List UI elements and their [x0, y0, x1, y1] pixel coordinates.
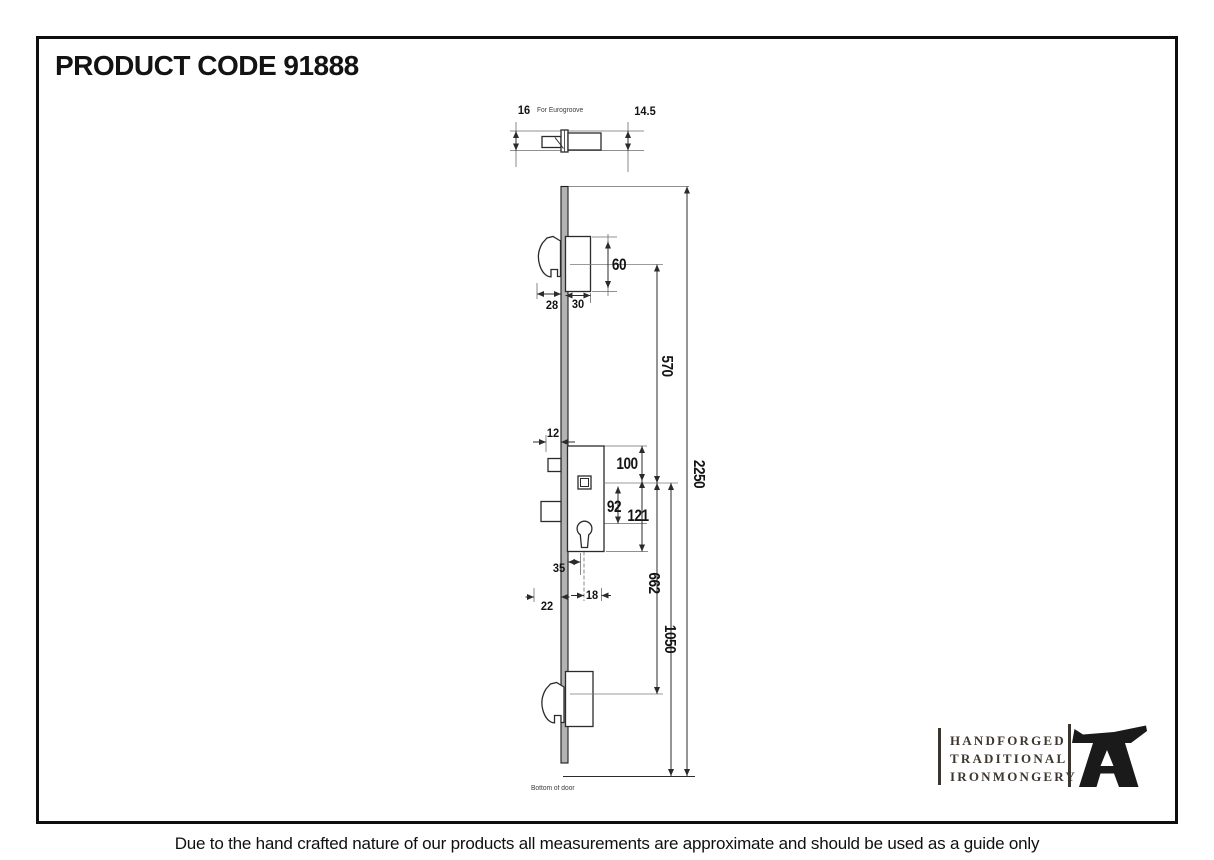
detail-lock-body — [568, 133, 601, 150]
bottom-hook-body — [566, 672, 594, 727]
dim-121-label: 121 — [627, 506, 648, 526]
note-eurogroove: For Eurogroove — [537, 107, 583, 114]
dim-30-label: 30 — [572, 297, 584, 311]
logo-text-line2: TRADITIONAL — [950, 750, 1077, 768]
latch-bolt — [548, 459, 561, 472]
logo-divider-right — [1068, 724, 1071, 787]
dimension-lines — [516, 131, 695, 777]
dim-662-label: 662 — [644, 572, 662, 593]
logo-divider-left — [938, 728, 941, 785]
dead-bolt — [541, 502, 561, 522]
logo-text-line3: IRONMONGERY — [950, 768, 1077, 786]
dim-18-label: 18 — [586, 588, 598, 602]
top-hook-claw — [538, 237, 560, 277]
dim-12-label: 12 — [547, 426, 559, 440]
dim-92-label: 92 — [607, 497, 621, 517]
brand-logo: HANDFORGED TRADITIONAL IRONMONGERY — [938, 722, 1168, 802]
top-hook-body — [566, 237, 591, 292]
logo-text-line1: HANDFORGED — [950, 732, 1077, 750]
dim-16-label: 16 — [518, 103, 530, 117]
disclaimer-text: Due to the hand crafted nature of our pr… — [0, 834, 1214, 854]
dim-2250-label: 2250 — [689, 460, 707, 488]
note-bottom-of-door: Bottom of door — [531, 785, 575, 792]
dim-35-label: 35 — [553, 561, 565, 575]
dim-60-label: 60 — [612, 255, 626, 275]
dim-28-label: 28 — [546, 298, 558, 312]
dim-1050-label: 1050 — [660, 625, 678, 653]
anvil-icon — [1072, 722, 1150, 792]
product-sheet: PRODUCT CODE 91888 — [0, 0, 1214, 860]
dim-14-5-label: 14.5 — [634, 104, 655, 118]
dim-22-label: 22 — [541, 599, 553, 613]
logo-text: HANDFORGED TRADITIONAL IRONMONGERY — [950, 732, 1077, 786]
dim-570-label: 570 — [657, 355, 675, 376]
bottom-hook-claw — [542, 683, 564, 723]
dim-100-label: 100 — [616, 454, 637, 474]
